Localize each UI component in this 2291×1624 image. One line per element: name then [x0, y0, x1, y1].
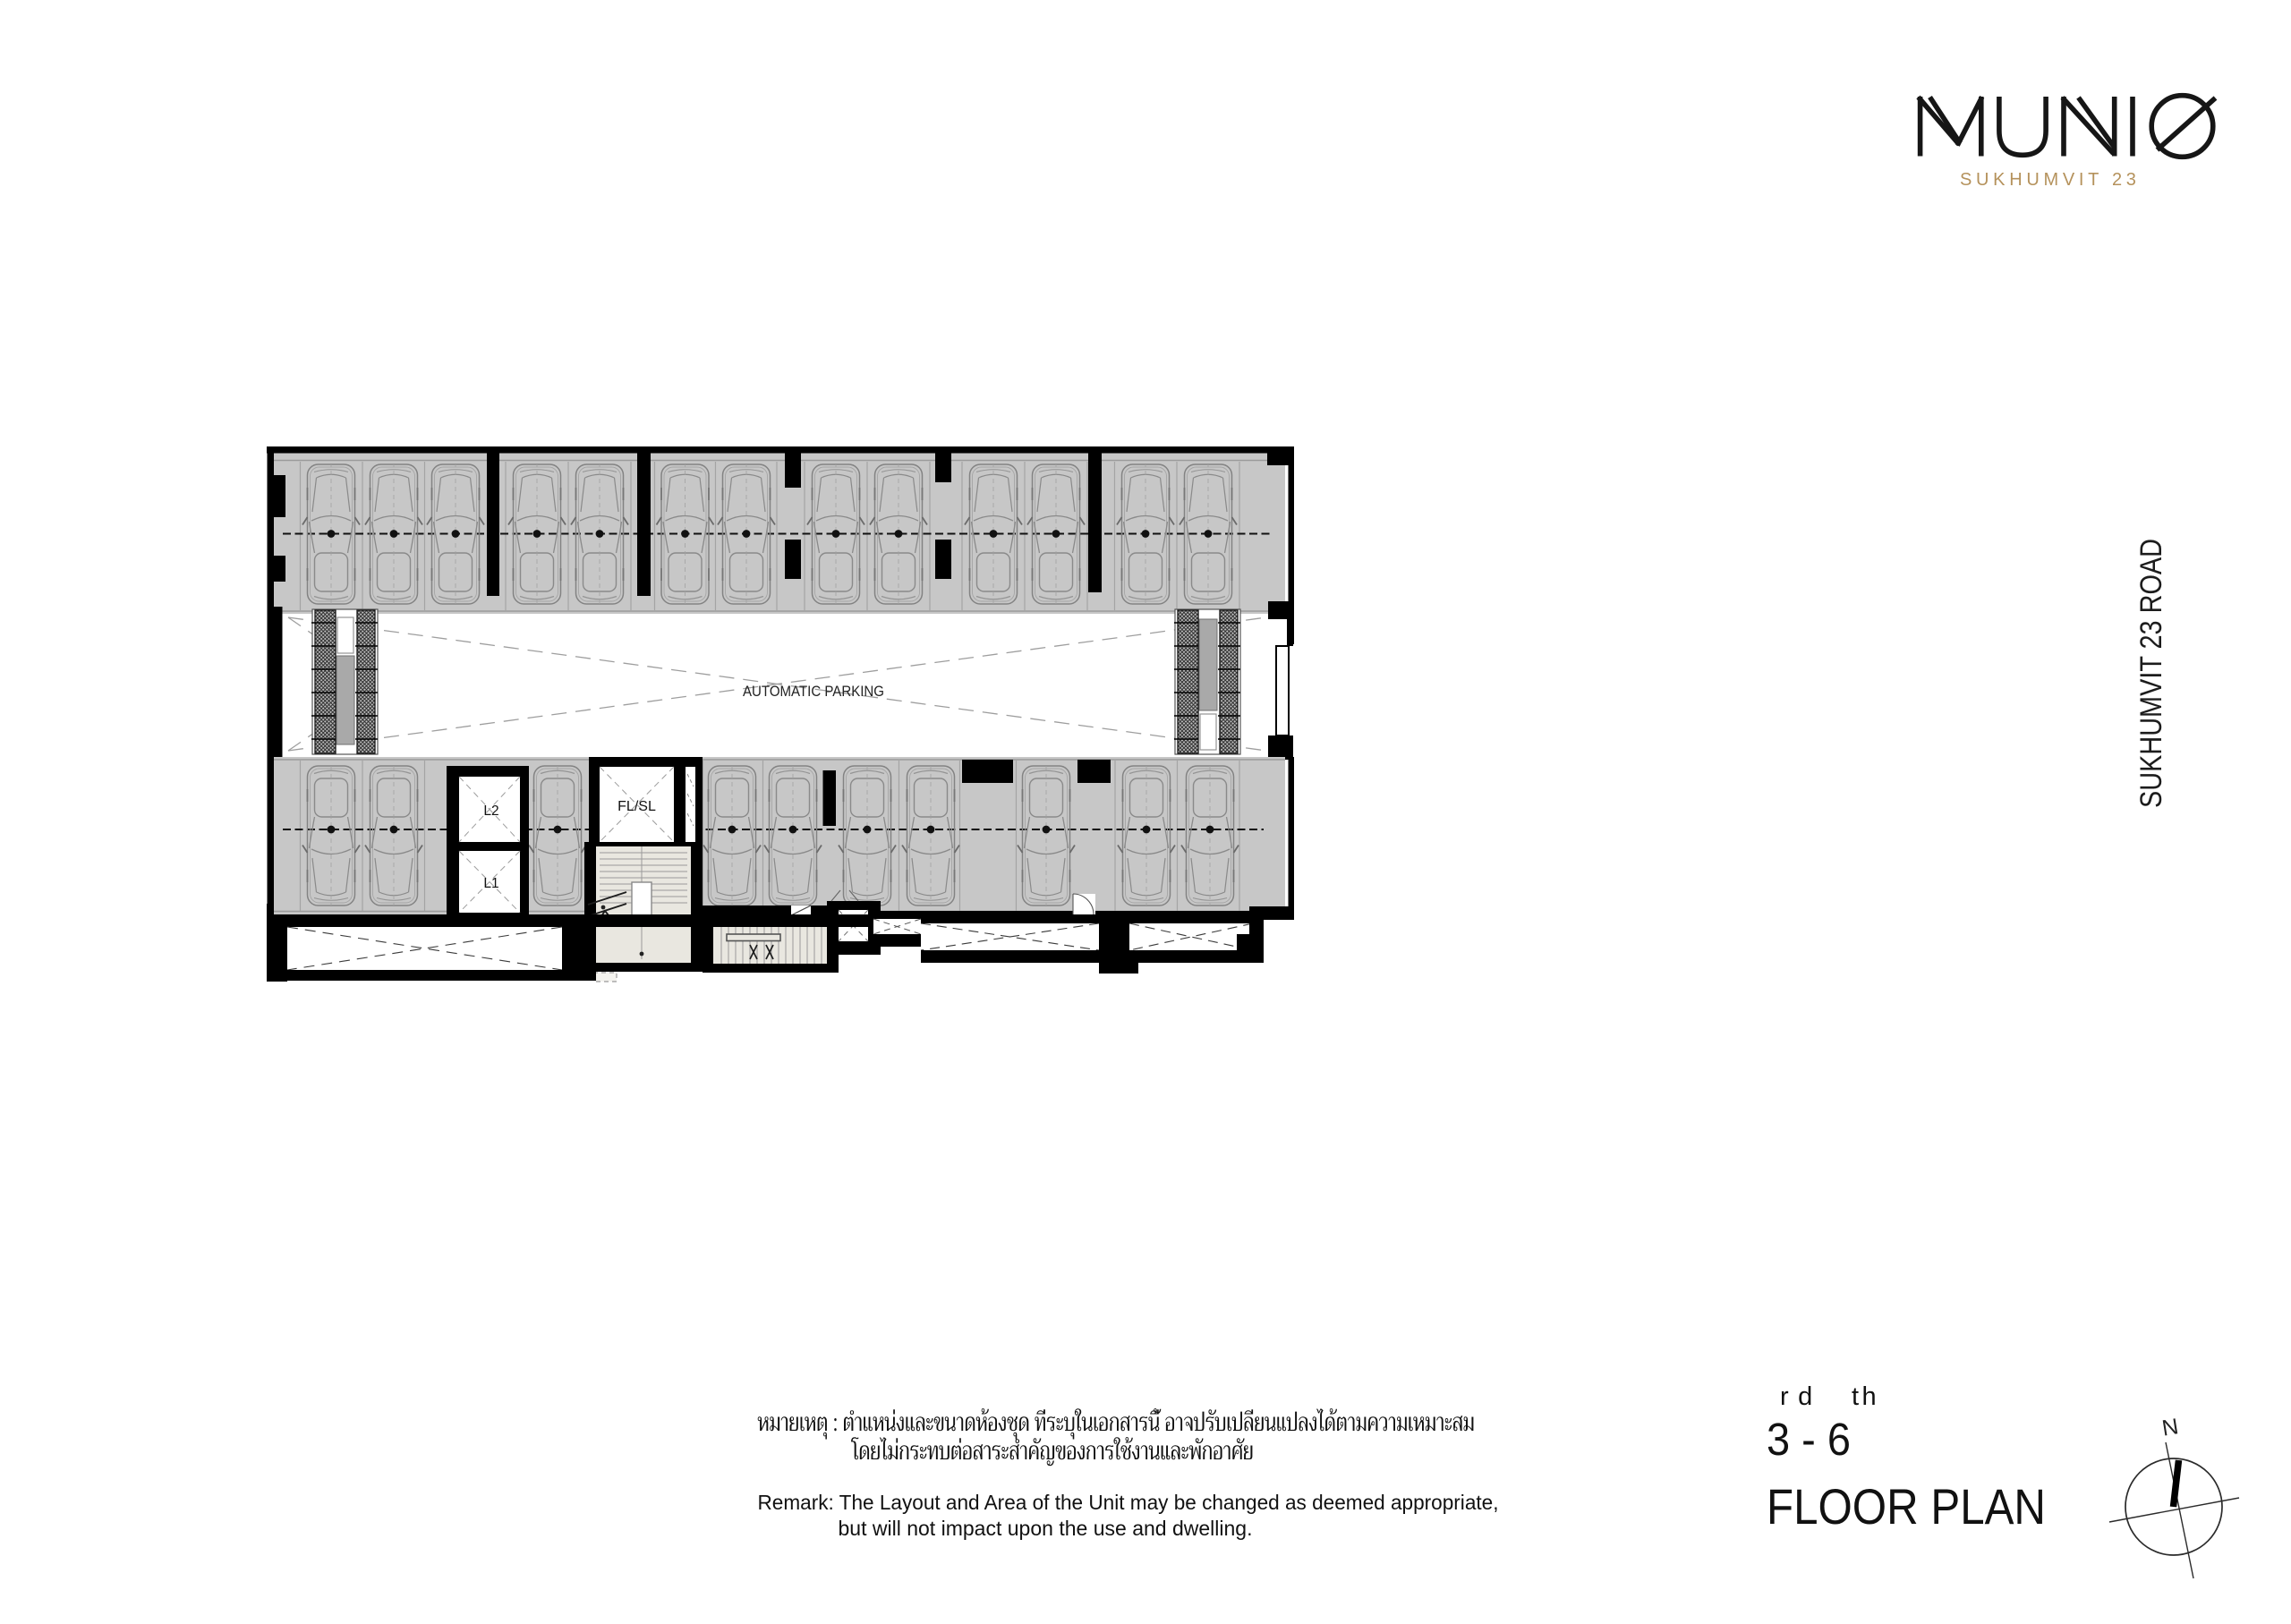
svg-text:th: th — [1852, 1382, 1879, 1411]
svg-text:SUKHUMVIT 23: SUKHUMVIT 23 — [1960, 170, 2141, 190]
svg-text:L1: L1 — [483, 876, 498, 891]
svg-text:L2: L2 — [483, 803, 498, 819]
svg-text:FLOOR PLAN: FLOOR PLAN — [1767, 1478, 2046, 1535]
svg-text:AUTOMATIC PARKING: AUTOMATIC PARKING — [743, 683, 884, 700]
svg-text:FL/SL: FL/SL — [617, 799, 656, 814]
svg-text:3 - 6: 3 - 6 — [1767, 1414, 1851, 1465]
svg-text:rd: rd — [1780, 1382, 1822, 1411]
svg-text:SUKHUMVIT 23 ROAD: SUKHUMVIT 23 ROAD — [2134, 539, 2168, 808]
svg-text:but will not impact upon the u: but will not impact upon the use and dwe… — [839, 1517, 1253, 1540]
svg-text:Remark: The Layout and Area of: Remark: The Layout and Area of the Unit … — [758, 1491, 1499, 1514]
